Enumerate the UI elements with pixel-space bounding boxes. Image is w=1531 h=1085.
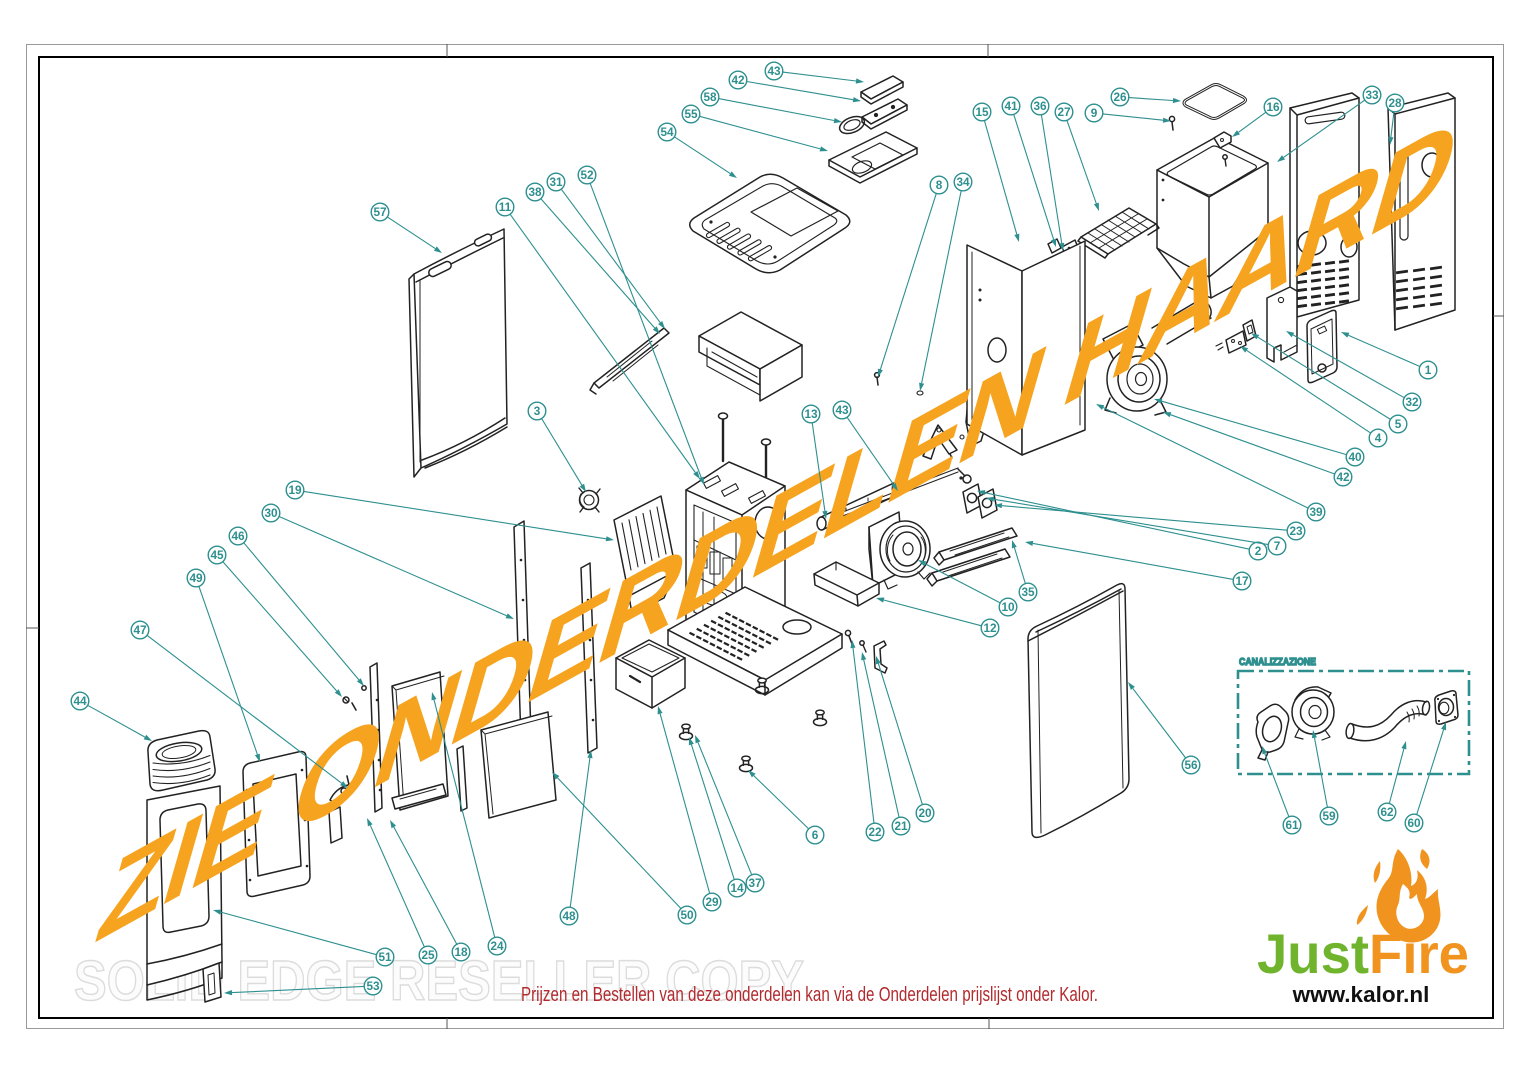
svg-text:2: 2: [1255, 544, 1262, 558]
svg-text:44: 44: [73, 694, 87, 708]
svg-text:47: 47: [133, 623, 147, 637]
svg-text:52: 52: [580, 168, 594, 182]
svg-text:13: 13: [804, 407, 818, 421]
svg-text:45: 45: [210, 548, 224, 562]
svg-text:48: 48: [562, 909, 576, 923]
svg-text:53: 53: [366, 979, 380, 993]
svg-text:31: 31: [549, 175, 563, 189]
svg-text:30: 30: [264, 506, 278, 520]
svg-text:20: 20: [918, 806, 932, 820]
svg-text:3: 3: [534, 404, 541, 418]
svg-text:6: 6: [812, 828, 819, 842]
svg-text:46: 46: [231, 529, 245, 543]
svg-text:59: 59: [1322, 809, 1336, 823]
svg-text:50: 50: [680, 908, 694, 922]
svg-text:38: 38: [528, 185, 542, 199]
svg-text:62: 62: [1380, 805, 1394, 819]
svg-text:61: 61: [1285, 818, 1299, 832]
svg-text:www.kalor.nl: www.kalor.nl: [1292, 982, 1430, 1007]
svg-text:18: 18: [454, 945, 468, 959]
svg-text:55: 55: [684, 107, 698, 121]
svg-text:10: 10: [1001, 600, 1015, 614]
svg-text:27: 27: [1057, 105, 1071, 119]
svg-text:23: 23: [1289, 524, 1303, 538]
svg-text:41: 41: [1004, 99, 1018, 113]
svg-text:58: 58: [703, 90, 717, 104]
svg-text:40: 40: [1348, 450, 1362, 464]
svg-text:35: 35: [1021, 585, 1035, 599]
svg-text:5: 5: [1395, 417, 1402, 431]
svg-text:39: 39: [1309, 505, 1323, 519]
svg-text:57: 57: [373, 205, 387, 219]
svg-text:24: 24: [490, 939, 504, 953]
svg-text:JustFire: JustFire: [1257, 922, 1469, 985]
svg-text:56: 56: [1184, 758, 1198, 772]
svg-text:17: 17: [1235, 574, 1249, 588]
svg-text:29: 29: [705, 895, 719, 909]
svg-text:7: 7: [1274, 539, 1281, 553]
svg-text:34: 34: [956, 175, 970, 189]
svg-text:CANALIZZAZIONE: CANALIZZAZIONE: [1239, 656, 1316, 668]
svg-text:60: 60: [1407, 816, 1421, 830]
svg-text:26: 26: [1113, 90, 1127, 104]
svg-text:25: 25: [421, 948, 435, 962]
svg-text:4: 4: [1375, 431, 1382, 445]
svg-text:1: 1: [1425, 363, 1432, 377]
svg-text:32: 32: [1405, 395, 1419, 409]
svg-text:49: 49: [189, 571, 203, 585]
svg-text:42: 42: [1336, 470, 1350, 484]
svg-text:36: 36: [1033, 99, 1047, 113]
svg-text:9: 9: [1091, 106, 1098, 120]
svg-text:16: 16: [1266, 100, 1280, 114]
svg-text:22: 22: [868, 825, 882, 839]
svg-text:11: 11: [499, 200, 512, 214]
svg-text:14: 14: [730, 881, 744, 895]
svg-text:12: 12: [983, 621, 997, 635]
svg-text:19: 19: [288, 483, 302, 497]
svg-text:8: 8: [936, 178, 943, 192]
svg-text:28: 28: [1388, 96, 1402, 110]
svg-text:51: 51: [378, 950, 392, 964]
svg-text:54: 54: [660, 125, 674, 139]
svg-text:43: 43: [767, 64, 781, 78]
svg-text:33: 33: [1365, 88, 1379, 102]
svg-text:Prijzen en Bestellen van deze: Prijzen en Bestellen van deze onderdelen…: [521, 984, 1098, 1006]
svg-text:15: 15: [975, 105, 989, 119]
svg-text:42: 42: [731, 73, 745, 87]
svg-text:37: 37: [748, 876, 762, 890]
svg-text:43: 43: [835, 403, 849, 417]
svg-text:21: 21: [894, 819, 908, 833]
